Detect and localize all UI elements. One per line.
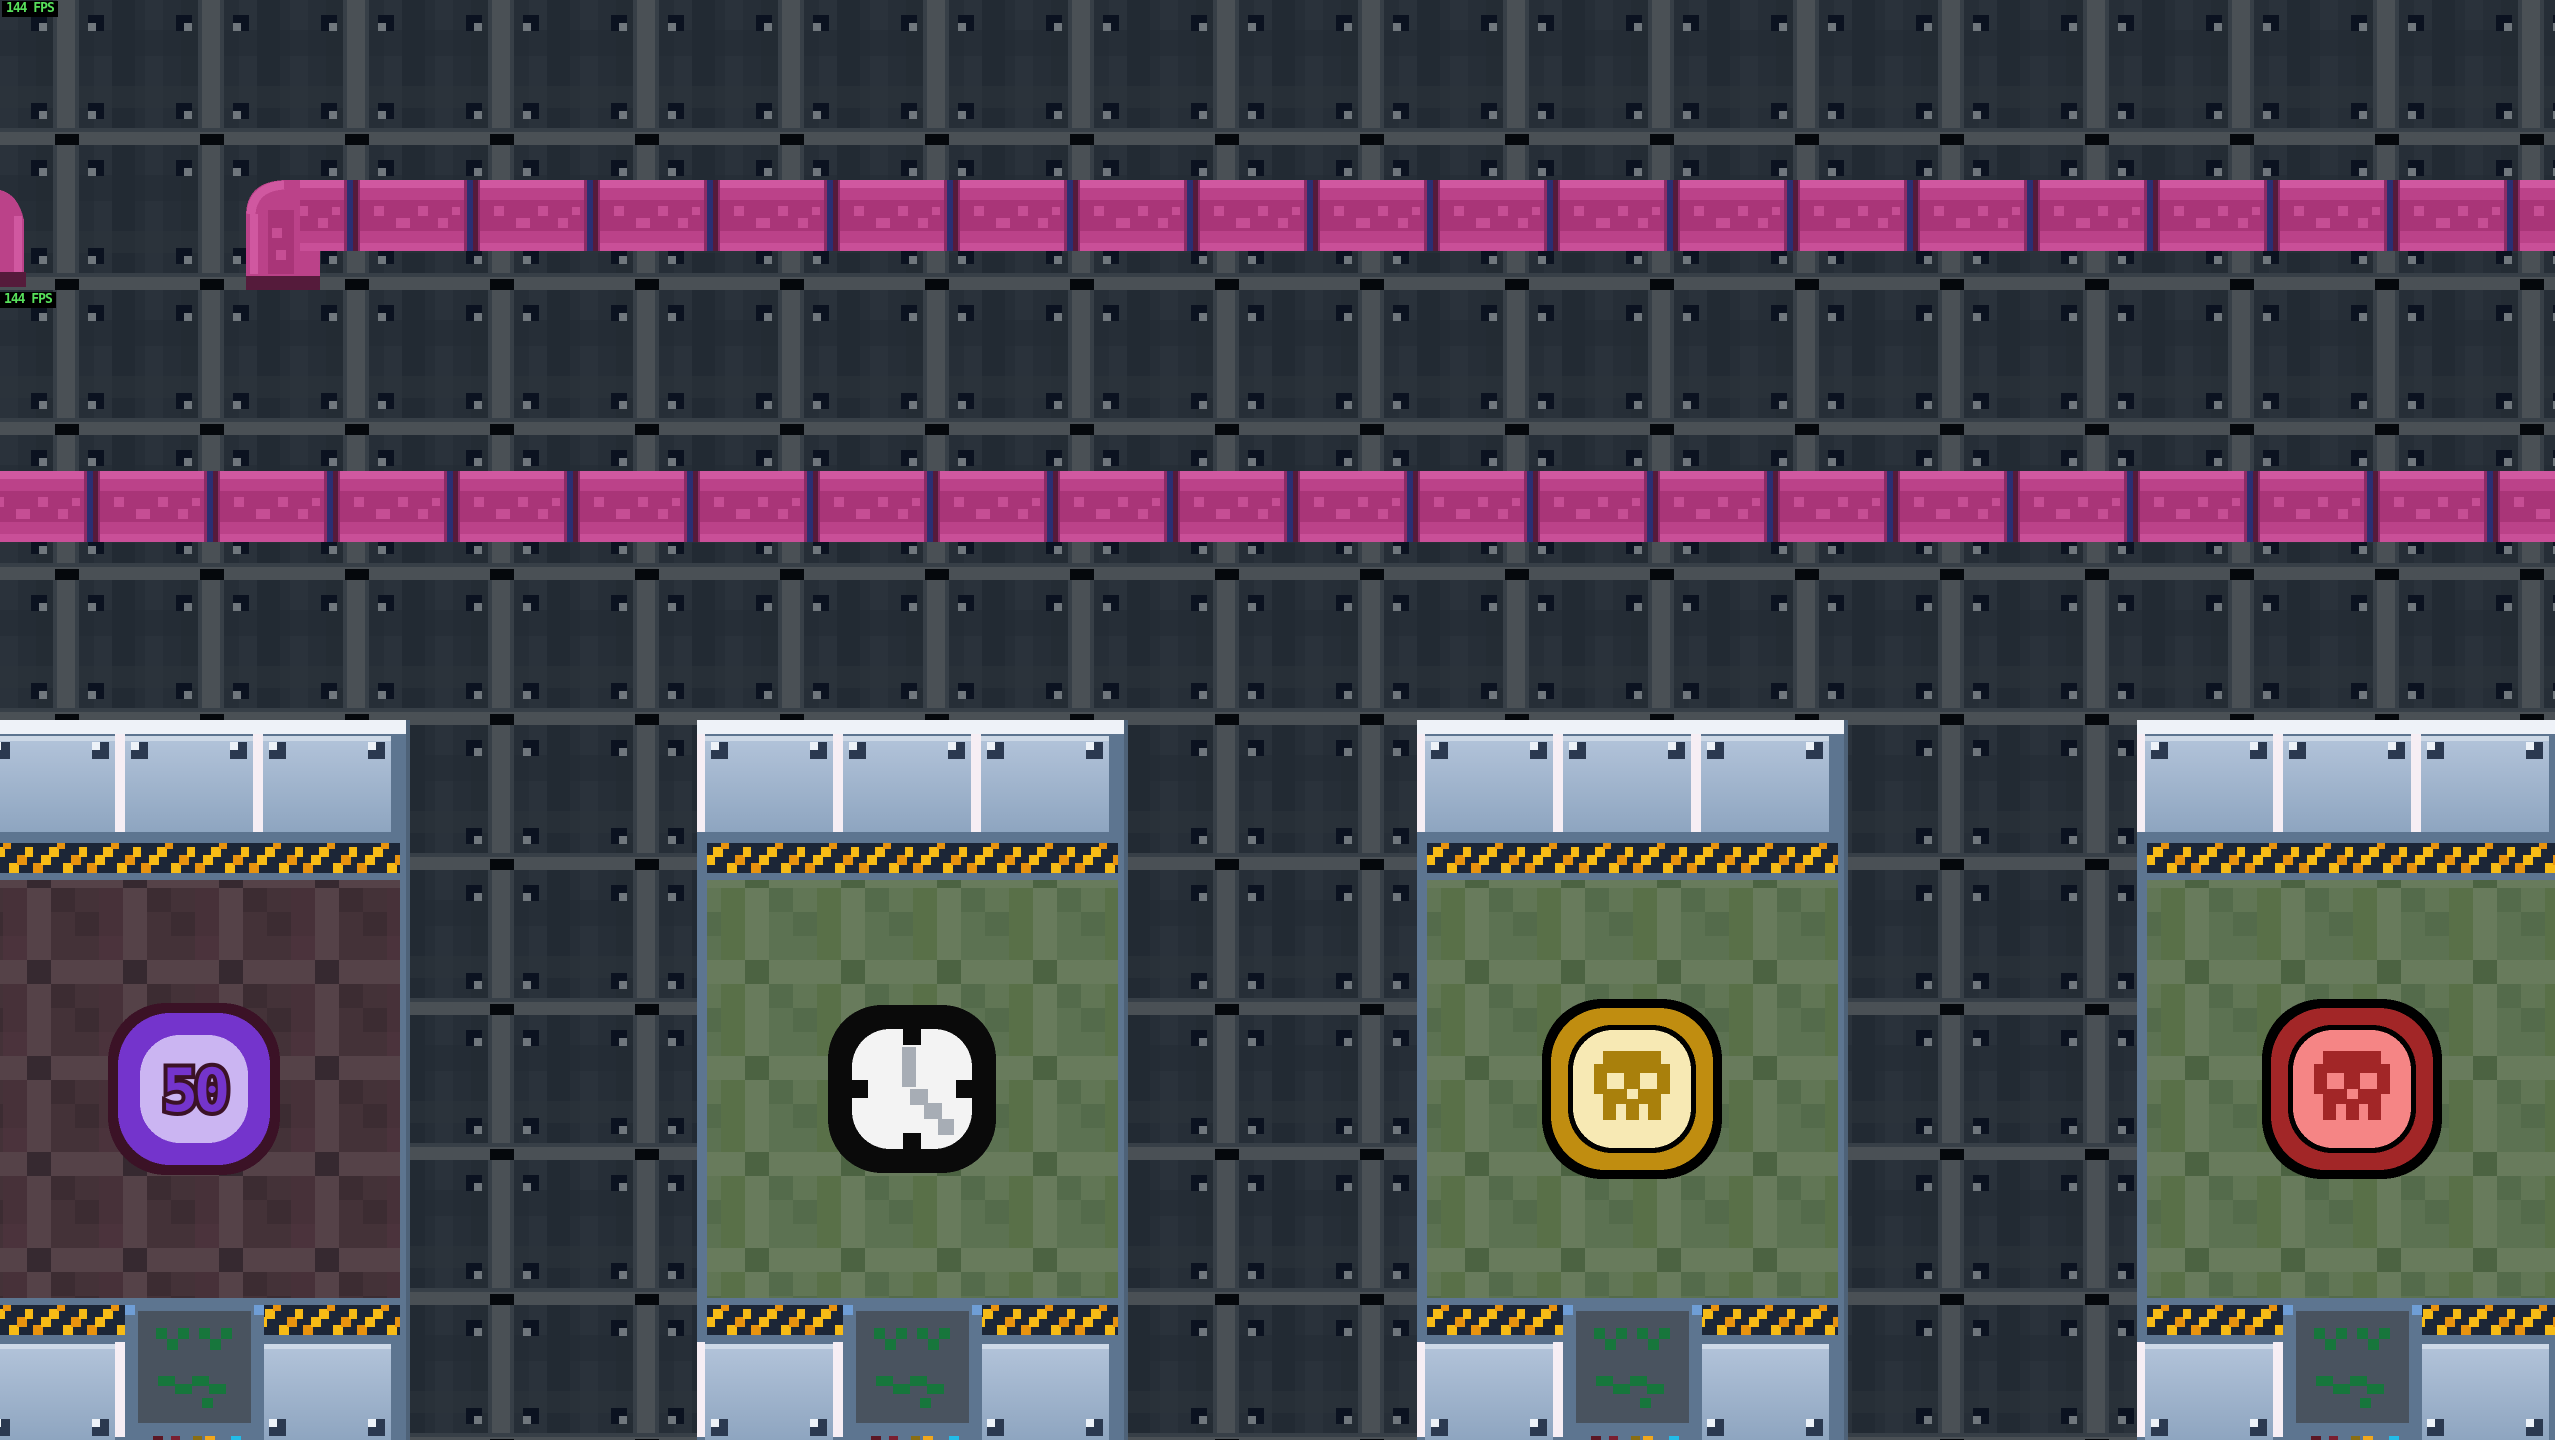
- game-scene: 50: [0, 0, 2555, 1440]
- game-viewport[interactable]: 50: [0, 0, 2555, 1440]
- fps-counter-top: 144 FPS: [2, 1, 58, 17]
- coin-50-icon: 50: [108, 1003, 280, 1175]
- door-panel-skull-red[interactable]: [2137, 720, 2555, 1440]
- door-panel-skull-gold[interactable]: [1417, 720, 1848, 1440]
- door-panel-coin-50[interactable]: 50: [0, 720, 410, 1440]
- skull-red-icon: [2262, 999, 2442, 1179]
- clock-icon: [828, 1005, 996, 1173]
- fps-counter-mid: 144 FPS: [0, 292, 56, 308]
- vent-grate: [1563, 1298, 1702, 1440]
- pipe-lower: [0, 471, 2555, 542]
- vent-grate: [2283, 1298, 2422, 1440]
- door-panel-clock[interactable]: [697, 720, 1128, 1440]
- vent-grate: [125, 1298, 264, 1440]
- skull-gold-icon: [1542, 999, 1722, 1179]
- coin-value-label: 50: [162, 1056, 227, 1126]
- vent-grate: [843, 1298, 982, 1440]
